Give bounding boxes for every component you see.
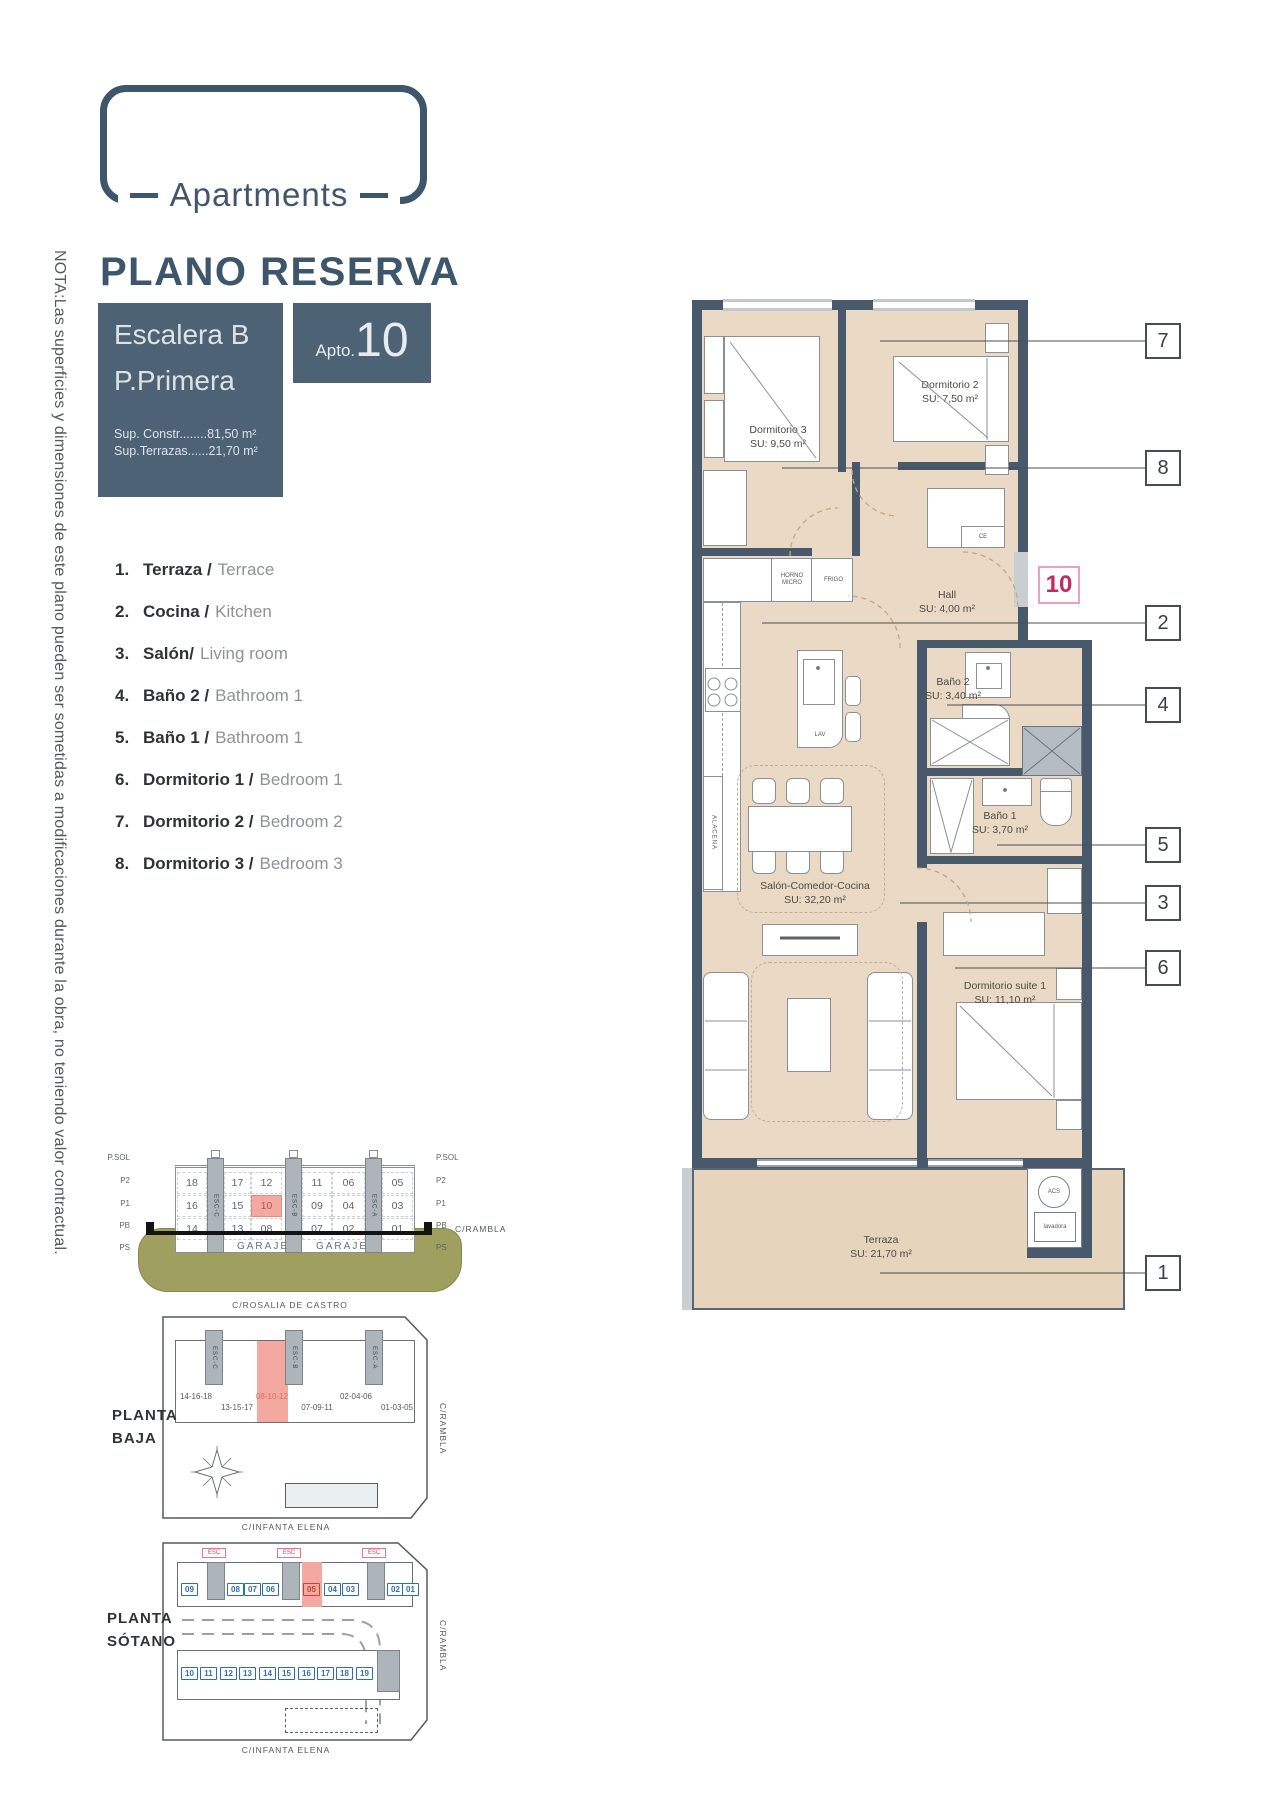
toilet-tank-line bbox=[1041, 791, 1071, 792]
bed-suite bbox=[956, 1002, 1082, 1100]
parking-stall: 12 bbox=[220, 1667, 237, 1680]
window bbox=[873, 299, 975, 311]
parking-stall-highlight: 05 bbox=[303, 1583, 320, 1596]
section-cell: 14 bbox=[177, 1218, 207, 1240]
street-label-right: C/RAMBLA bbox=[438, 1403, 448, 1454]
parking-stall: 04 bbox=[324, 1583, 341, 1596]
core-label: ESC-C bbox=[211, 1346, 217, 1370]
floor-label: PS bbox=[436, 1243, 447, 1252]
section-cell: 13 bbox=[224, 1218, 251, 1240]
apto-number: 10 bbox=[355, 317, 408, 365]
hall-closet: CE bbox=[927, 488, 1005, 548]
room-area: SU: 4,00 m² bbox=[887, 603, 1007, 617]
legend-item: 4. Baño 2 / Bathroom 1 bbox=[115, 686, 303, 706]
stove bbox=[705, 668, 741, 712]
parking-stall: 10 bbox=[181, 1667, 198, 1680]
legend-num: 2. bbox=[115, 602, 143, 622]
slider-door bbox=[928, 1159, 1023, 1167]
room-label-dormitorio3: Dormitorio 3 SU: 9,50 m² bbox=[718, 424, 838, 451]
parking-stall: 16 bbox=[298, 1667, 315, 1680]
parking-stall: 09 bbox=[181, 1583, 198, 1596]
unit-escalera: Escalera B bbox=[114, 319, 283, 351]
street-post bbox=[146, 1222, 154, 1235]
legend-en: Bathroom 1 bbox=[215, 728, 303, 748]
legend-num: 7. bbox=[115, 812, 143, 832]
tv-console bbox=[762, 924, 858, 956]
core-label: ESC-A bbox=[371, 1346, 377, 1369]
room-name: Dormitorio 3 bbox=[718, 424, 838, 438]
wall bbox=[927, 640, 1018, 648]
street-label-right: C/RAMBLA bbox=[438, 1620, 448, 1671]
legend-item: 2. Cocina / Kitchen bbox=[115, 602, 272, 622]
parking-stall: 19 bbox=[356, 1667, 373, 1680]
room-area: SU: 7,50 m² bbox=[890, 393, 1010, 407]
wardrobe bbox=[703, 470, 747, 546]
callout-7: 7 bbox=[1145, 323, 1181, 359]
core-tag: ESC bbox=[277, 1548, 301, 1558]
section-cell: 02 bbox=[332, 1218, 365, 1240]
callout-8: 8 bbox=[1145, 450, 1181, 486]
room-name: Baño 1 bbox=[950, 810, 1050, 824]
parking-stall: 06 bbox=[262, 1583, 279, 1596]
legend-item: 5. Baño 1 / Bathroom 1 bbox=[115, 728, 303, 748]
parking-stall: 14 bbox=[259, 1667, 276, 1680]
legend-item: 7. Dormitorio 2 / Bedroom 2 bbox=[115, 812, 343, 832]
room-label-bano2: Baño 2 SU: 3,40 m² bbox=[903, 676, 1003, 703]
unit-group: 13-15-17 bbox=[215, 1403, 259, 1412]
legend-num: 3. bbox=[115, 644, 143, 664]
wall bbox=[917, 922, 927, 1158]
room-name: Baño 2 bbox=[903, 676, 1003, 690]
unit-group: 01-03-05 bbox=[375, 1403, 419, 1412]
legend-item: 8. Dormitorio 3 / Bedroom 3 bbox=[115, 854, 343, 874]
floor-label: PB bbox=[100, 1221, 130, 1230]
stair-core: ESC-C bbox=[207, 1158, 224, 1253]
washbasin bbox=[982, 778, 1032, 806]
legend-es: Dormitorio 3 / bbox=[143, 854, 254, 874]
legend-en: Terrace bbox=[218, 560, 275, 580]
oven-label: HORNO MICRO bbox=[775, 573, 809, 587]
unit-planta: P.Primera bbox=[114, 365, 283, 397]
legend-num: 4. bbox=[115, 686, 143, 706]
wall bbox=[692, 548, 812, 556]
parking-stall: 03 bbox=[342, 1583, 359, 1596]
room-name: Salón-Comedor-Cocina bbox=[745, 880, 885, 894]
section-cell: 05 bbox=[382, 1172, 413, 1194]
legend-es: Dormitorio 2 / bbox=[143, 812, 254, 832]
core-label: ESC-B bbox=[291, 1346, 297, 1369]
section-cell-highlight: 10 bbox=[251, 1195, 282, 1217]
section-cell: 11 bbox=[302, 1172, 332, 1194]
callout-2: 2 bbox=[1145, 605, 1181, 641]
legend-es: Terraza / bbox=[143, 560, 212, 580]
fridge-label: FRIGO bbox=[824, 577, 843, 584]
stool bbox=[845, 712, 861, 742]
floor-label: P2 bbox=[436, 1176, 446, 1185]
wardrobe bbox=[985, 323, 1009, 353]
slider-door bbox=[757, 1159, 917, 1167]
wall bbox=[852, 462, 860, 556]
baja-highlight-cell bbox=[257, 1341, 288, 1422]
core-cap bbox=[289, 1150, 298, 1158]
stair-core bbox=[207, 1562, 225, 1600]
nightstand bbox=[1056, 1100, 1082, 1130]
street-label-bottom: C/INFANTA ELENA bbox=[216, 1745, 356, 1755]
section-cell: 03 bbox=[382, 1195, 413, 1217]
legend-en: Kitchen bbox=[215, 602, 272, 622]
section-cell: 17 bbox=[224, 1172, 251, 1194]
kitchen-island: LAV bbox=[797, 650, 843, 748]
wall bbox=[1027, 1248, 1092, 1258]
logo-dash-right-icon bbox=[360, 193, 388, 198]
legend-num: 1. bbox=[115, 560, 143, 580]
floor-label: P1 bbox=[436, 1199, 446, 1208]
parking-stall: 08 bbox=[227, 1583, 244, 1596]
logo-text: Apartments bbox=[170, 176, 349, 214]
pool-outline-dashed bbox=[285, 1708, 378, 1733]
room-label-terraza: Terraza SU: 21,70 m² bbox=[821, 1234, 941, 1261]
legend-en: Bedroom 2 bbox=[260, 812, 343, 832]
unit-group: 07-09-11 bbox=[295, 1403, 339, 1412]
legend-en: Bedroom 3 bbox=[260, 854, 343, 874]
room-name: Terraza bbox=[821, 1234, 941, 1248]
window bbox=[723, 299, 832, 311]
sotano-title: PLANTA SÓTANO bbox=[107, 1608, 187, 1653]
wall bbox=[1018, 300, 1028, 552]
baja-title: PLANTA BAJA bbox=[112, 1405, 184, 1450]
elevator bbox=[1022, 726, 1082, 776]
wardrobe bbox=[985, 445, 1009, 475]
floor-label: P.SOL bbox=[436, 1153, 459, 1162]
room-label-suite: Dormitorio suite 1 SU: 11,10 m² bbox=[935, 980, 1075, 1007]
section-cell: 06 bbox=[332, 1172, 365, 1194]
logo-dash-left-icon bbox=[130, 193, 158, 198]
wall bbox=[917, 640, 927, 868]
section-cell: 18 bbox=[177, 1172, 207, 1194]
callout-6: 6 bbox=[1145, 950, 1181, 986]
stool bbox=[845, 676, 861, 706]
room-name: Hall bbox=[887, 589, 1007, 603]
legend-es: Dormitorio 1 / bbox=[143, 770, 254, 790]
unit-sup-constr: Sup. Constr........81,50 m² bbox=[114, 427, 283, 441]
stair-core bbox=[367, 1562, 385, 1600]
core-label: ESC-A bbox=[371, 1194, 377, 1217]
room-area: SU: 9,50 m² bbox=[718, 438, 838, 452]
unit-number-badge: 10 bbox=[1038, 566, 1080, 604]
unit-group: 02-04-06 bbox=[334, 1392, 378, 1401]
core-tag: ESC bbox=[362, 1548, 386, 1558]
parking-stall: 18 bbox=[336, 1667, 353, 1680]
legend-es: Baño 1 / bbox=[143, 728, 209, 748]
ce-label: CE bbox=[979, 534, 987, 541]
legend-num: 6. bbox=[115, 770, 143, 790]
room-area: SU: 3,70 m² bbox=[950, 824, 1050, 838]
stair-core: ESC-B bbox=[285, 1330, 303, 1385]
unit-info-box: Escalera B P.Primera Sup. Constr........… bbox=[98, 303, 283, 497]
room-label-salon: Salón-Comedor-Cocina SU: 32,20 m² bbox=[745, 880, 885, 907]
ce-cell: CE bbox=[961, 526, 1004, 547]
parking-stall: 11 bbox=[200, 1667, 217, 1680]
disclaimer-note: NOTA:Las superficies y dimensiones de es… bbox=[50, 250, 68, 1335]
core-cap bbox=[369, 1150, 378, 1158]
alacena-label: ALACENA bbox=[710, 815, 717, 850]
wardrobe bbox=[943, 912, 1045, 956]
callout-3: 3 bbox=[1145, 885, 1181, 921]
wall bbox=[692, 300, 702, 1168]
core-label: ESC-B bbox=[291, 1194, 297, 1217]
section-cell: 01 bbox=[382, 1218, 413, 1240]
legend-num: 8. bbox=[115, 854, 143, 874]
room-label-bano1: Baño 1 SU: 3,70 m² bbox=[950, 810, 1050, 837]
lav-label: LAV bbox=[815, 732, 826, 738]
legend-en: Bedroom 1 bbox=[260, 770, 343, 790]
pool bbox=[285, 1483, 378, 1508]
entrance-landing bbox=[1014, 552, 1028, 607]
acs-tank: ACS bbox=[1038, 1176, 1070, 1208]
room-area: SU: 32,20 m² bbox=[745, 894, 885, 908]
floor-label: P1 bbox=[100, 1199, 130, 1208]
floor-label: PS bbox=[100, 1243, 130, 1252]
parking-stall: 15 bbox=[278, 1667, 295, 1680]
stair-core: ESC-B bbox=[285, 1158, 302, 1253]
oven-cell: HORNO MICRO bbox=[771, 559, 812, 601]
room-label-dormitorio2: Dormitorio 2 SU: 7,50 m² bbox=[890, 379, 1010, 406]
room-area: SU: 3,40 m² bbox=[903, 690, 1003, 704]
stair-core bbox=[377, 1650, 400, 1692]
core-tag: ESC bbox=[202, 1548, 226, 1558]
page-title: PLANO RESERVA bbox=[100, 250, 460, 295]
room-label-hall: Hall SU: 4,00 m² bbox=[887, 589, 1007, 616]
floor-label: P2 bbox=[100, 1176, 130, 1185]
wall bbox=[927, 856, 1092, 864]
legend-item: 3. Salón/ Living room bbox=[115, 644, 288, 664]
stair-core: ESC-C bbox=[205, 1330, 223, 1385]
garaje-label: GARAJE bbox=[302, 1240, 382, 1253]
stair-core: ESC-A bbox=[365, 1330, 383, 1385]
plan-sheet: Apartments PLANO RESERVA Escalera B P.Pr… bbox=[0, 0, 1280, 1811]
sink bbox=[803, 659, 835, 705]
room-name: Dormitorio suite 1 bbox=[935, 980, 1075, 994]
section-cell: 16 bbox=[177, 1195, 207, 1217]
seating-zone-outline bbox=[751, 962, 903, 1122]
section-cell: 09 bbox=[302, 1195, 332, 1217]
street-label-rambla: C/RAMBLA bbox=[455, 1224, 506, 1234]
room-name: Dormitorio 2 bbox=[890, 379, 1010, 393]
room-area: SU: 21,70 m² bbox=[821, 1248, 941, 1262]
pantry: ALACENA bbox=[703, 776, 723, 890]
street-label-bottom: C/INFANTA ELENA bbox=[216, 1522, 356, 1532]
callout-5: 5 bbox=[1145, 827, 1181, 863]
sofa bbox=[703, 972, 749, 1120]
street-post bbox=[424, 1222, 432, 1235]
legend-item: 6. Dormitorio 1 / Bedroom 1 bbox=[115, 770, 343, 790]
section-cell: 07 bbox=[302, 1218, 332, 1240]
brand-logo: Apartments bbox=[118, 176, 400, 214]
garaje-label: GARAJE bbox=[224, 1240, 302, 1253]
parking-stall: 07 bbox=[244, 1583, 261, 1596]
core-cap bbox=[211, 1150, 220, 1158]
core-label: ESC-C bbox=[213, 1194, 219, 1218]
legend-es: Cocina / bbox=[143, 602, 209, 622]
street-label-top: C/ROSALIA DE CASTRO bbox=[190, 1300, 390, 1310]
parking-stall: 17 bbox=[317, 1667, 334, 1680]
acs-label: ACS bbox=[1048, 1189, 1060, 1196]
section-cell: 15 bbox=[224, 1195, 251, 1217]
callout-4: 4 bbox=[1145, 687, 1181, 723]
washer: lavadora bbox=[1034, 1212, 1076, 1242]
wall bbox=[1018, 640, 1092, 648]
floor-label: PB bbox=[436, 1221, 447, 1230]
unit-sup-terrazas: Sup.Terrazas......21,70 m² bbox=[114, 444, 283, 458]
legend-es: Baño 2 / bbox=[143, 686, 209, 706]
section-cell: 04 bbox=[332, 1195, 365, 1217]
wall bbox=[838, 308, 846, 472]
bed-pillow bbox=[704, 336, 724, 394]
unit-group: 14-16-18 bbox=[174, 1392, 218, 1401]
street-level-line bbox=[150, 1231, 432, 1235]
shower bbox=[930, 718, 1010, 766]
section-cell: 08 bbox=[251, 1218, 282, 1240]
fridge-cell: FRIGO bbox=[811, 559, 855, 601]
apto-label: Apto. bbox=[315, 341, 355, 361]
section-cell: 12 bbox=[251, 1172, 282, 1194]
callout-1: 1 bbox=[1145, 1255, 1181, 1291]
lav-label-wrap: LAV bbox=[798, 723, 842, 741]
legend-es: Salón/ bbox=[143, 644, 194, 664]
kitchen-counter-top: HORNO MICRO FRIGO bbox=[703, 558, 853, 602]
floor-label: P.SOL bbox=[100, 1153, 130, 1162]
legend-item: 1. Terraza / Terrace bbox=[115, 560, 274, 580]
washer-label: lavadora bbox=[1043, 1224, 1066, 1231]
apto-box: Apto. 10 bbox=[293, 303, 431, 383]
legend-en: Bathroom 1 bbox=[215, 686, 303, 706]
room-area: SU: 11,10 m² bbox=[935, 994, 1075, 1008]
stair-core bbox=[282, 1562, 300, 1600]
unit-group-highlight: 08-10-12 bbox=[250, 1392, 294, 1401]
parking-stall: 13 bbox=[239, 1667, 256, 1680]
party-wall-strip bbox=[682, 1168, 692, 1310]
legend-num: 5. bbox=[115, 728, 143, 748]
stair-core: ESC-A bbox=[365, 1158, 382, 1253]
wardrobe bbox=[1047, 868, 1082, 914]
legend-en: Living room bbox=[200, 644, 288, 664]
parking-stall: 01 bbox=[402, 1583, 419, 1596]
